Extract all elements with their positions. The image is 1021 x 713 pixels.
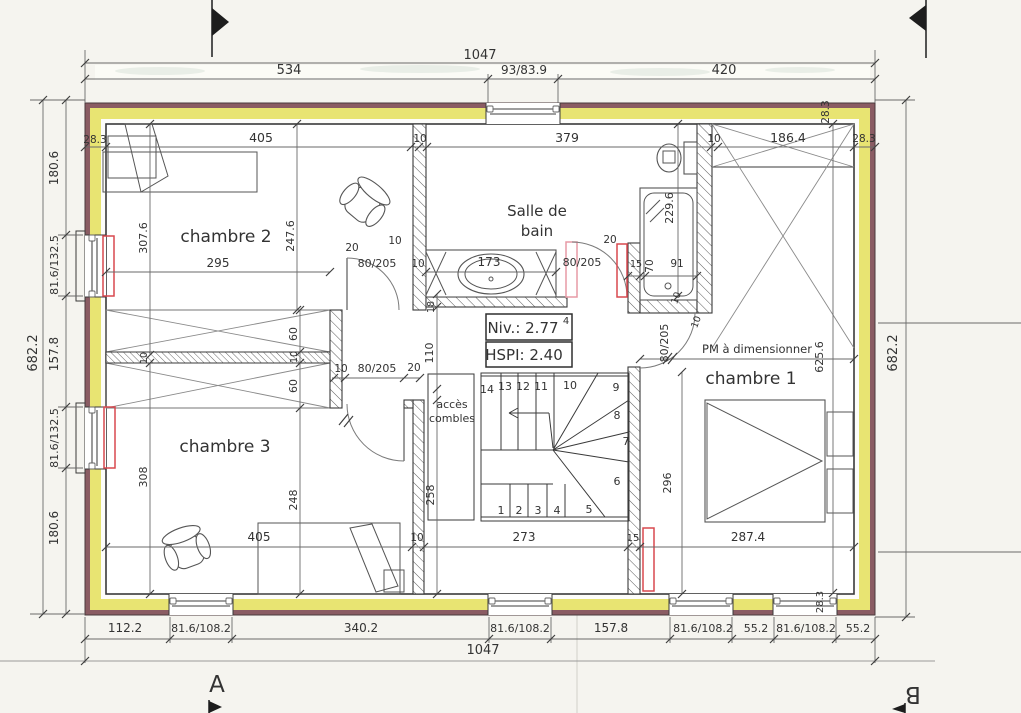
- wall-hall-chambre1: [628, 367, 640, 594]
- niv-value: Niv.: 2.77: [487, 319, 558, 337]
- niv-exponent: 4: [563, 316, 569, 327]
- dim-label: 10: [410, 532, 423, 544]
- room-label-salle-de-bain-2: bain: [521, 222, 553, 240]
- stair-step-number: 10: [563, 379, 577, 392]
- dim-label: 10: [139, 352, 150, 364]
- wall-bathroom-bottom: [426, 297, 567, 307]
- dim-label: 308: [137, 467, 150, 488]
- dim-label: 340.2: [344, 621, 378, 635]
- dim-label: 273: [513, 530, 536, 544]
- window-bottom-4: [773, 594, 837, 615]
- section-letter-b: B: [905, 681, 921, 707]
- dim-label: 60: [287, 327, 300, 341]
- stair-step-number: 5: [586, 503, 593, 516]
- dim-label: 81.6/132.5: [48, 408, 61, 468]
- dim-label: 81.6/108.2: [490, 622, 550, 635]
- dim-label: 81.6/108.2: [776, 622, 836, 635]
- dim-label: 91: [670, 258, 683, 270]
- dim-label: 258: [424, 485, 437, 506]
- dim-label: 247.6: [284, 220, 297, 252]
- dim-top-window: 93/83.9: [501, 63, 547, 77]
- dim-label: 248: [287, 490, 300, 511]
- dim-label: 180.6: [47, 151, 61, 185]
- floor-plan-page: 104753493/83.942028.34051037910186.428.3…: [0, 0, 1021, 713]
- section-letter-a: A: [209, 672, 225, 698]
- wall-corridor-corner: [330, 310, 342, 408]
- dim-label: 55.2: [744, 622, 769, 635]
- dim-label: 110: [423, 343, 436, 364]
- dim-label: 295: [207, 256, 230, 270]
- dim-label: 80/205: [358, 257, 397, 270]
- label-pm-a-dimensionner: PM à dimensionner: [702, 342, 812, 356]
- dim-label: 15: [627, 533, 640, 544]
- stair-step-number: 12: [516, 380, 530, 393]
- dim-label: 186.4: [770, 130, 806, 145]
- dim-label: 10: [289, 351, 300, 363]
- dim-right-total: 682.2: [886, 334, 901, 371]
- wall-chambre3-door-jamb: [404, 400, 413, 408]
- dim-bottom-total: 1047: [466, 643, 499, 658]
- dim-label: 80/205: [358, 362, 397, 375]
- wall-bathroom-right: [697, 124, 712, 313]
- dim-label: 10: [411, 258, 424, 270]
- dim-label: 625.6: [813, 341, 826, 373]
- dim-label: 405: [249, 130, 273, 145]
- dim-label: 307.6: [137, 222, 150, 254]
- dim-label: 10: [388, 235, 401, 247]
- dim-label: 80/205: [563, 256, 602, 269]
- stair-step-number: 9: [613, 381, 620, 394]
- dim-label: 80/205: [658, 324, 671, 363]
- dim-label: 20: [345, 242, 358, 254]
- wall-chambre3-right: [413, 400, 424, 594]
- window-top: [486, 103, 560, 124]
- dim-top-total: 1047: [463, 48, 496, 63]
- window-bottom-1: [169, 594, 233, 615]
- label-acces-combles-2: combles: [429, 412, 475, 425]
- dim-label: 229.6: [663, 192, 676, 224]
- window-bottom-2: [488, 594, 552, 615]
- dim-top-534: 534: [277, 63, 302, 78]
- stair-step-number: 11: [534, 380, 548, 393]
- dim-label: 70: [644, 259, 656, 272]
- dim-label: 405: [248, 530, 271, 544]
- dim-label: 28.3: [815, 591, 826, 613]
- dim-label: 379: [555, 130, 579, 145]
- dim-label: 81.6/108.2: [673, 622, 733, 635]
- stair-step-number: 4: [554, 504, 561, 517]
- dim-label: 81.6/108.2: [171, 622, 231, 635]
- stair-step-number: 13: [498, 380, 512, 393]
- stair-step-number: 3: [535, 504, 542, 517]
- room-label-salle-de-bain-1: Salle de: [507, 202, 567, 220]
- dim-label: 157.8: [594, 621, 628, 635]
- dim-label: 112.2: [108, 621, 142, 635]
- room-label-chambre2: chambre 2: [180, 227, 271, 247]
- dim-top-420: 420: [712, 63, 737, 78]
- dim-label: 287.4: [731, 530, 765, 544]
- room-label-chambre1: chambre 1: [705, 369, 796, 389]
- stair-step-number: 6: [614, 475, 621, 488]
- room-label-chambre3: chambre 3: [179, 437, 270, 457]
- stair-step-number: 1: [498, 504, 505, 517]
- dim-label: 10: [413, 133, 426, 145]
- dim-label: 81.6/132.5: [48, 235, 61, 295]
- whiteout-band: [95, 65, 870, 80]
- dim-label: 20: [603, 234, 616, 246]
- dim-label: 20: [407, 362, 420, 374]
- dim-label: 15: [630, 259, 642, 270]
- stair-step-number: 14: [480, 383, 494, 396]
- dim-label: 173: [478, 255, 501, 269]
- label-acces-combles-1: accès: [436, 398, 468, 411]
- stair-step-number: 2: [516, 504, 523, 517]
- dim-label: 180.6: [47, 511, 61, 545]
- dim-label: 60: [287, 379, 300, 393]
- dim-label: 18: [426, 301, 437, 313]
- stair-step-number: 7: [623, 435, 630, 448]
- dim-label: 296: [661, 473, 674, 494]
- dim-label: 55.2: [846, 622, 871, 635]
- wall-bathroom-left: [413, 124, 426, 310]
- dim-left-total: 682.2: [26, 334, 41, 371]
- dim-label: 10: [334, 363, 347, 375]
- dim-label: 10: [707, 133, 720, 145]
- dim-label: 157.8: [47, 337, 61, 371]
- floor-plan-drawing: 104753493/83.942028.34051037910186.428.3…: [0, 0, 1021, 713]
- dim-label: 28.3: [820, 100, 832, 123]
- stair-step-number: 8: [614, 409, 621, 422]
- dim-label: 28.3: [83, 134, 106, 146]
- hspi-value: HSPI: 2.40: [485, 346, 563, 364]
- dim-label: 28.3: [852, 133, 875, 145]
